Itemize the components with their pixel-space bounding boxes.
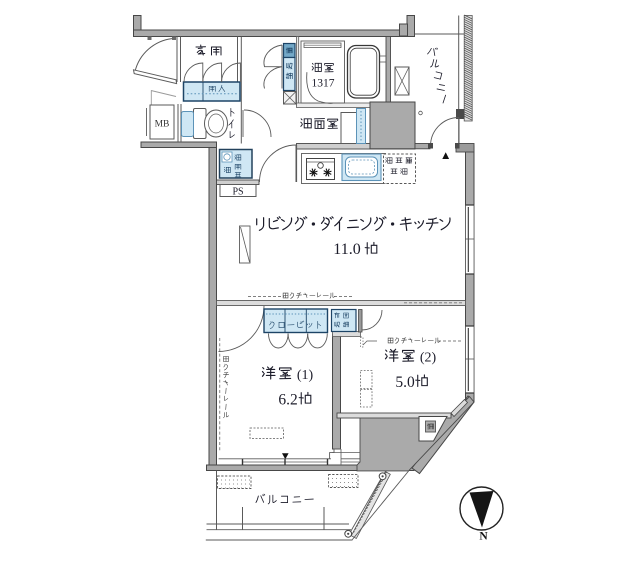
svg-text:5.0: 5.0 xyxy=(395,374,415,391)
svg-text:PS: PS xyxy=(232,187,243,198)
svg-text:N: N xyxy=(479,531,488,543)
svg-text:11.0: 11.0 xyxy=(333,241,360,258)
svg-text:MB: MB xyxy=(155,120,170,130)
svg-text:6.2: 6.2 xyxy=(278,392,297,409)
svg-text:(2): (2) xyxy=(420,351,437,366)
svg-text:(1): (1) xyxy=(297,368,314,383)
svg-text:1317: 1317 xyxy=(312,78,335,90)
